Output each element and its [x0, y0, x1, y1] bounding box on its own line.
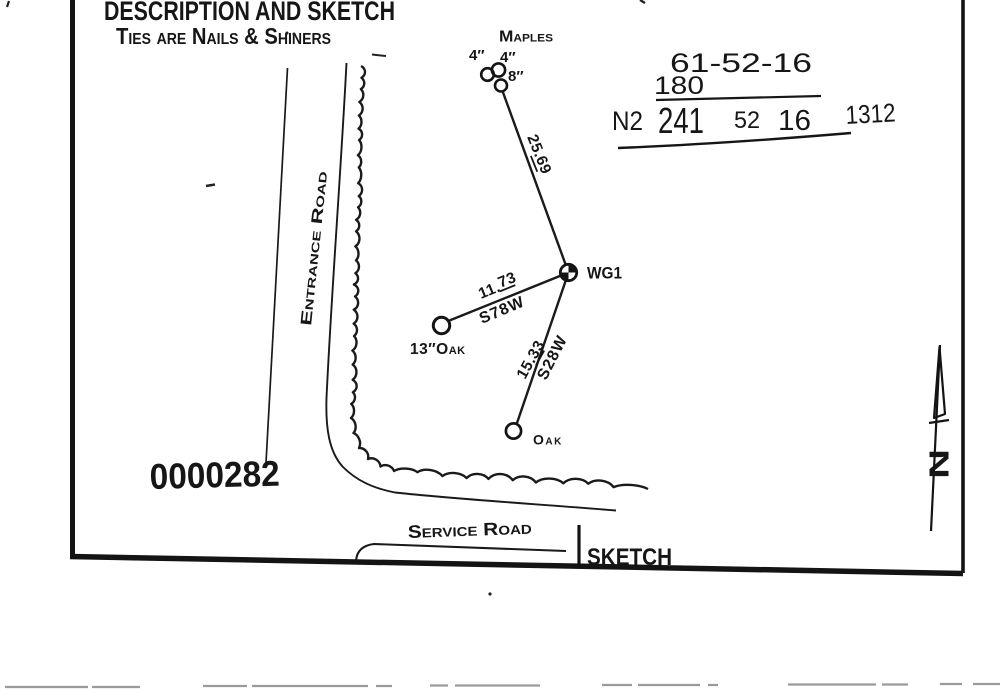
svg-text:0000282: 0000282	[149, 453, 280, 497]
svg-text:4″: 4″	[469, 47, 485, 64]
svg-text:1312: 1312	[845, 97, 897, 130]
svg-text:N2: N2	[612, 106, 643, 136]
svg-text:N: N	[924, 449, 955, 479]
svg-text:8″: 8″	[508, 68, 524, 85]
svg-text:Ties are Nails & Shiners: Ties are Nails & Shiners	[116, 23, 331, 49]
svg-text:52: 52	[734, 107, 760, 134]
svg-text:16: 16	[778, 105, 811, 137]
svg-text:241: 241	[658, 100, 704, 141]
svg-text:Oak: Oak	[533, 432, 563, 448]
svg-text:WG1: WG1	[587, 265, 622, 283]
svg-text:180: 180	[654, 72, 704, 100]
svg-text:13″Oak: 13″Oak	[410, 341, 466, 358]
svg-text:SKETCH: SKETCH	[587, 544, 672, 571]
svg-text:Maples: Maples	[499, 29, 553, 46]
